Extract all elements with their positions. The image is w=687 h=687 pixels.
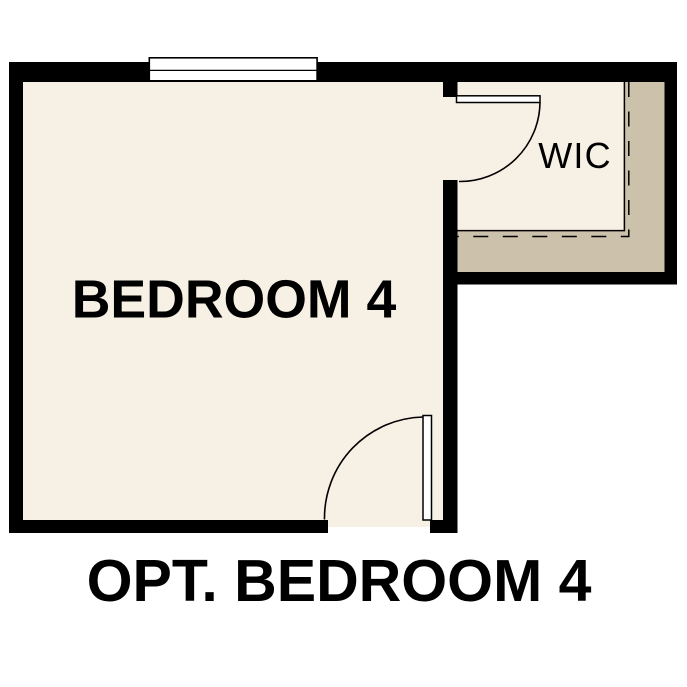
svg-text:WIC: WIC bbox=[538, 135, 612, 176]
svg-text:BEDROOM 4: BEDROOM 4 bbox=[72, 270, 397, 330]
svg-text:OPT. BEDROOM 4: OPT. BEDROOM 4 bbox=[87, 548, 592, 614]
